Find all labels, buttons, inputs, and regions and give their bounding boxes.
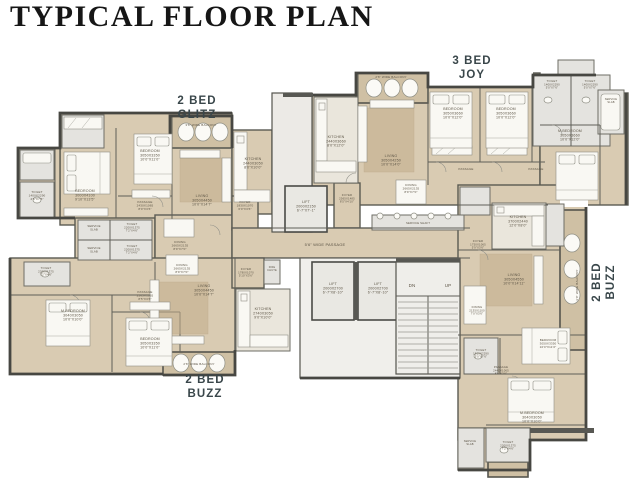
bed — [64, 152, 110, 194]
passage-joy-1-label: PASSAGE — [458, 167, 473, 171]
passage-main-label: 5'6" WIDE PASSAGE — [305, 242, 346, 247]
bedroom-joy-1-label: BEDROOM3050X366010'0"X12'0" — [443, 107, 464, 120]
bed — [556, 152, 598, 200]
planter-oval — [384, 79, 400, 97]
bedroom-glitz-2-label: BEDROOM3000X41009'10"X13'5" — [75, 189, 96, 202]
kitchen-joy-label: KITCHEN2440X36608'0"X12'0" — [326, 135, 346, 148]
passage-joy-2-label: PASSAGE — [528, 167, 543, 171]
balcony-joy-label: 2'6" WIDE BALCONY — [375, 75, 406, 79]
staircase — [396, 258, 460, 374]
kitchen-glitz-label: KITCHEN2440X30508'0"X10'0" — [243, 157, 263, 170]
planter-oval — [564, 234, 580, 252]
unit-label-2bed-buzz-right: 2 BEDBUZZ — [591, 262, 617, 301]
kitchen-buzz-b-label: KITCHEN2740X30509'0"X10'0" — [253, 307, 273, 320]
bedroom-glitz-1-label: BEDROOM3050X335010'0"X11'0" — [140, 149, 160, 162]
unit-label-2bed-buzz-bottom: 2 BEDBUZZ — [185, 374, 224, 400]
mbedroom-buzz-b-label: M.BEDROOM3040X305010'0"X10'0" — [61, 309, 85, 322]
balcony-buzz-r-label: 3'0" WIDE BALCONY — [575, 269, 579, 300]
bedroom-joy-2-label: BEDROOM3050X366010'0"X12'0" — [496, 107, 517, 120]
kitchen-buzz-r-label: KITCHEN3700X244012'0"X8'0" — [508, 215, 528, 228]
balcony-glitz-label: 3'6" WIDE BALCONY — [185, 123, 216, 127]
balcony-buzz-b-label: 2'6" WIDE BALCONY — [183, 362, 214, 366]
bedroom-buzz-b-label: BEDROOM3050X335010'0"X11'0" — [140, 337, 160, 350]
stairs-up-label: UP — [445, 283, 452, 288]
floor-plan-page: TYPICAL FLOOR PLAN — [0, 0, 638, 497]
bed — [430, 92, 472, 148]
passage-buzz-r-label: PASSAGE2440X10658'0"X3'6" — [493, 365, 509, 376]
passage-glitz-label: PASSAGE2430X10658'0"X3'6" — [137, 200, 154, 211]
mbedroom-buzz-r-label: M.BEDROOM3040X305010'0"X10'0" — [520, 411, 544, 424]
mbedroom-joy-label: M.BEDROOM3050X366010'0"X12'0" — [558, 129, 582, 142]
bedroom-buzz-r-label: BEDROOM3050X335010'0"X11'0" — [540, 338, 557, 349]
bed — [46, 300, 90, 346]
planter-oval — [366, 79, 382, 97]
stairs-down-label: DN — [409, 283, 416, 288]
planter-oval — [402, 79, 418, 97]
unit-label-2bed-glitz: 2 BEDGLITZ — [177, 95, 216, 121]
service-shaft-label: SERVICE SHAFT — [406, 221, 430, 225]
bed — [486, 92, 528, 148]
passage-buzz-b-label: PASSAGE2565X10658'5"X3'6" — [137, 290, 154, 301]
floor-plan-drawing: 3'6" WIDE BALCONYLIVING3050X445010'0"X14… — [0, 0, 638, 497]
